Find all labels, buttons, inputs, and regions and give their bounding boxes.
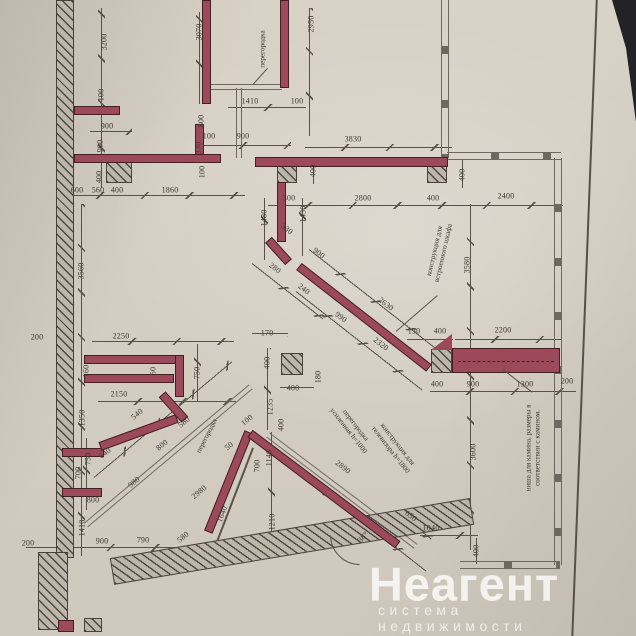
dimension-label: 300	[283, 194, 296, 203]
dimension-label: 400	[427, 194, 440, 203]
dimension-label: 200	[31, 333, 44, 342]
dimension-label: 2800	[355, 194, 372, 203]
dimension-label: 160	[82, 365, 91, 378]
dimension-label: 240	[296, 282, 311, 297]
annotation-label: конструкция длявстроенного шкафа	[424, 221, 454, 283]
dimension-label: 330	[194, 142, 203, 155]
dimension-label: 2630	[377, 295, 396, 312]
dimension-label: 1040	[423, 524, 440, 533]
annotation-label: перегородкаусиленная h=1000	[328, 401, 376, 455]
dimension-label: 170	[261, 329, 274, 338]
dimension-label: 400	[95, 171, 104, 184]
dimension-label: 560	[92, 186, 105, 195]
floor-plan-photo: 3200100900900400600560400186030702950141…	[0, 0, 636, 636]
dimension-label: 640	[97, 446, 112, 461]
dimension-label: 38°	[356, 530, 371, 545]
dimension-label: 2400	[498, 192, 515, 201]
dimension-label: 3830	[345, 135, 362, 144]
dimension-label: 3200	[100, 34, 109, 51]
dimension-label: 1640	[215, 505, 229, 524]
watermark-tagline: система недвижимости	[378, 602, 550, 634]
dimension-label: 100	[97, 89, 106, 102]
annotation-label: перегородка	[259, 30, 268, 67]
dimension-label: 2150	[111, 390, 128, 399]
dimension-label: 200	[561, 377, 574, 386]
dimension-label: 200	[22, 539, 35, 548]
dimension-label: 900	[467, 380, 480, 389]
dimension-label-layer: 3200100900900400600560400186030702950141…	[0, 0, 636, 636]
dimension-label: 1860	[162, 186, 179, 195]
dimension-label: 400	[434, 327, 447, 336]
dimension-label: 400	[277, 419, 286, 432]
dimension-label: 900	[96, 537, 109, 546]
dimension-label: 3560	[77, 263, 86, 280]
dimension-label: 400	[309, 165, 318, 178]
dimension-label: 790	[137, 536, 150, 545]
dimension-label: 50	[223, 440, 235, 452]
dimension-label: 800	[154, 438, 169, 453]
dimension-label: 900	[237, 132, 250, 141]
dimension-label: 900	[96, 140, 105, 153]
dimension-label: 1210	[268, 514, 277, 531]
dimension-label: 2320	[372, 335, 391, 352]
dimension-label: 1140	[265, 450, 274, 467]
dimension-label: 980	[126, 475, 141, 490]
dimension-label: 1235	[266, 399, 275, 416]
dimension-label: 50	[149, 367, 158, 375]
dimension-label: 330	[279, 222, 294, 237]
dimension-label: 900	[101, 122, 114, 131]
dimension-label: 400	[111, 186, 124, 195]
dimension-label: 990	[333, 310, 348, 325]
dimension-label: 400	[472, 545, 481, 558]
dimension-label: 2200	[495, 326, 512, 335]
dimension-label: 400	[287, 384, 300, 393]
dimension-label: 400	[263, 357, 272, 370]
dimension-label: 800	[197, 115, 206, 128]
dimension-label: 1300	[517, 380, 534, 389]
dimension-label: 100	[239, 413, 254, 428]
dimension-label: 1350	[78, 410, 87, 427]
dimension-label: 2980	[190, 483, 209, 501]
dimension-label: 3070	[195, 24, 204, 41]
dimension-label: 2950	[307, 16, 316, 33]
dimension-label: 400	[458, 169, 467, 182]
dimension-label: 2250	[113, 332, 130, 341]
dimension-label: 100	[198, 166, 207, 179]
dimension-label: 600	[71, 186, 84, 195]
dimension-label: 3600	[469, 444, 478, 461]
dimension-label: 2890	[334, 458, 353, 475]
dimension-label: 1430	[299, 206, 308, 223]
dimension-label: 750	[84, 453, 93, 466]
dimension-label: 100	[291, 97, 304, 106]
annotation-label: ниша для камина, размеры всоответствии с…	[524, 404, 541, 491]
dimension-label: 130	[408, 327, 421, 336]
dimension-label: 700	[74, 467, 83, 480]
dimension-label: 1480	[260, 210, 269, 227]
dimension-label: 280	[267, 261, 282, 276]
dimension-label: 100	[203, 132, 216, 141]
dimension-label: 580	[176, 415, 191, 430]
dimension-label: 700	[253, 460, 262, 473]
dimension-label: 750	[193, 367, 202, 380]
dimension-label: 3580	[463, 257, 472, 274]
dimension-label: 1410	[242, 97, 259, 106]
dimension-label: 650	[403, 509, 418, 524]
dimension-label: 540	[129, 407, 144, 422]
dimension-label: 800	[87, 496, 100, 505]
dimension-label: 580	[175, 530, 190, 545]
annotation-label: перегородка	[195, 417, 220, 454]
dimension-label: 900	[311, 246, 326, 261]
dimension-label: 180	[314, 371, 323, 384]
dimension-label: 1410	[78, 520, 87, 537]
annotation-label: конструкция длятелевизора h=1800	[370, 419, 419, 475]
dimension-label: 400	[431, 380, 444, 389]
